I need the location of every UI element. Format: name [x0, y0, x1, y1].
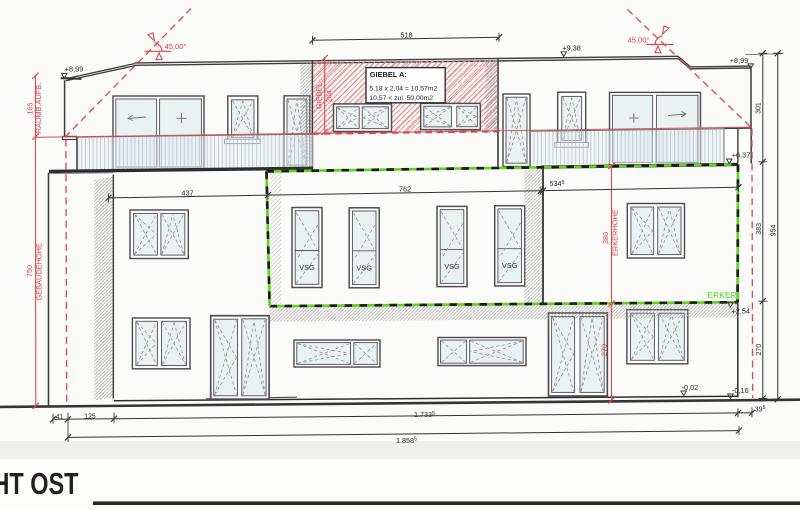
svg-text:ERKERHÖHE: ERKERHÖHE [611, 209, 620, 256]
svg-text:-0,16: -0,16 [732, 386, 749, 395]
svg-text:383: 383 [756, 223, 763, 235]
svg-text:750: 750 [25, 265, 34, 277]
svg-text:41: 41 [56, 414, 64, 421]
svg-text:GIEBEL: GIEBEL [314, 83, 323, 109]
svg-text:+6,37: +6,37 [732, 150, 750, 159]
svg-text:270: 270 [599, 344, 608, 356]
svg-text:+9,38: +9,38 [562, 44, 580, 53]
svg-text:45,00°: 45,00° [165, 42, 187, 51]
svg-text:+8,99: +8,99 [730, 56, 748, 65]
svg-text:RAUMB.AUFB.: RAUMB.AUFB. [34, 83, 43, 134]
svg-text:45,00°: 45,00° [628, 35, 650, 44]
svg-text:204: 204 [325, 90, 334, 102]
svg-text:GEBÄUDEHÖHE: GEBÄUDEHÖHE [34, 243, 43, 301]
svg-text:954: 954 [771, 224, 778, 236]
svg-text:762: 762 [399, 185, 411, 194]
svg-text:1.8585: 1.8585 [396, 436, 417, 445]
svg-text:+2,54: +2,54 [732, 307, 750, 316]
svg-text:VSG: VSG [444, 262, 460, 271]
svg-text:301: 301 [756, 102, 763, 114]
svg-text:VSG: VSG [356, 263, 372, 272]
svg-text:VSG: VSG [502, 261, 518, 270]
svg-text:5,18 x 2,04 = 10,57m2: 5,18 x 2,04 = 10,57m2 [369, 86, 437, 93]
svg-text:HT OST: HT OST [0, 467, 79, 501]
svg-text:380: 380 [601, 232, 610, 244]
svg-text:ERKER: ERKER [708, 291, 737, 300]
svg-text:518: 518 [400, 30, 412, 39]
svg-text:437: 437 [181, 188, 193, 197]
svg-text:+8,99: +8,99 [65, 65, 83, 74]
svg-text:VSG: VSG [299, 263, 315, 272]
svg-text:270: 270 [756, 344, 763, 356]
svg-text:10,57 < zul. 50,00m2: 10,57 < zul. 50,00m2 [369, 95, 433, 102]
svg-text:125: 125 [84, 414, 96, 421]
svg-text:1.7335: 1.7335 [414, 410, 435, 419]
svg-text:GIEBEL A:: GIEBEL A: [370, 70, 407, 79]
